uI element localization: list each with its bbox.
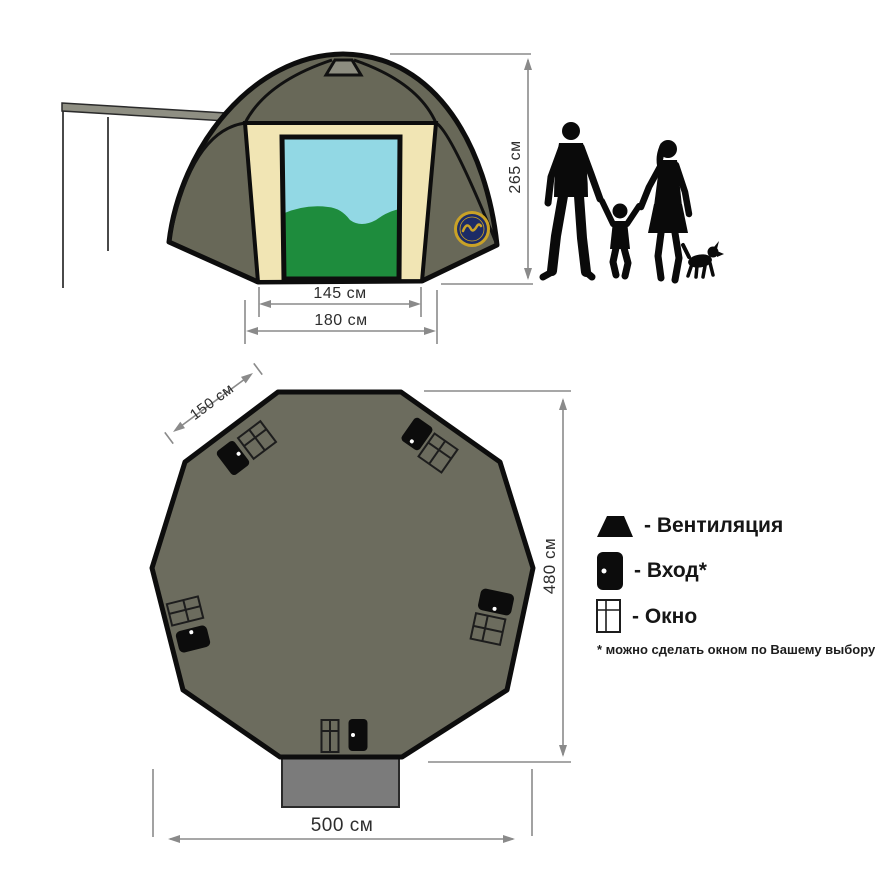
dim-label-width: 500 см bbox=[311, 815, 374, 837]
child-silhouette bbox=[602, 201, 639, 276]
dim-witness bbox=[165, 432, 173, 443]
dog-silhouette bbox=[683, 241, 724, 277]
dim-label-height: 265 см bbox=[507, 140, 525, 193]
diagram-canvas bbox=[0, 0, 875, 875]
plan-door-icon bbox=[349, 719, 368, 751]
legend-label-entrance: - Вход* bbox=[634, 559, 707, 583]
dim-label-door-width: 145 см bbox=[313, 285, 366, 303]
window-icon bbox=[596, 599, 622, 634]
legend-label-window: - Окно bbox=[632, 605, 697, 629]
brand-logo bbox=[456, 213, 489, 246]
family-silhouette bbox=[543, 122, 724, 280]
vestibule bbox=[282, 757, 399, 807]
man-silhouette bbox=[543, 122, 600, 277]
dim-label-panel-width: 180 см bbox=[314, 312, 367, 330]
legend-label-ventilation: - Вентиляция bbox=[644, 514, 783, 538]
dim-witness bbox=[254, 363, 262, 374]
woman-silhouette bbox=[641, 140, 689, 280]
legend-item-ventilation: - Вентиляция bbox=[596, 514, 783, 538]
scenery-hills bbox=[282, 206, 400, 279]
legend-item-entrance: - Вход* bbox=[596, 551, 707, 591]
legend-item-window: - Окно bbox=[596, 599, 697, 634]
front-view bbox=[62, 54, 724, 344]
plan-view bbox=[152, 363, 571, 843]
ventilation-icon bbox=[596, 514, 634, 538]
door-opening bbox=[282, 137, 400, 279]
dim-label-depth: 480 см bbox=[540, 538, 560, 594]
awning-canopy bbox=[62, 103, 226, 121]
floor-polygon bbox=[152, 392, 533, 757]
entrance-door-icon bbox=[596, 551, 624, 591]
tent-spec-diagram: 145 см 180 см 265 см 150 см 480 см 500 с… bbox=[0, 0, 875, 875]
legend-note: * можно сделать окном по Вашему выбору bbox=[597, 642, 875, 657]
